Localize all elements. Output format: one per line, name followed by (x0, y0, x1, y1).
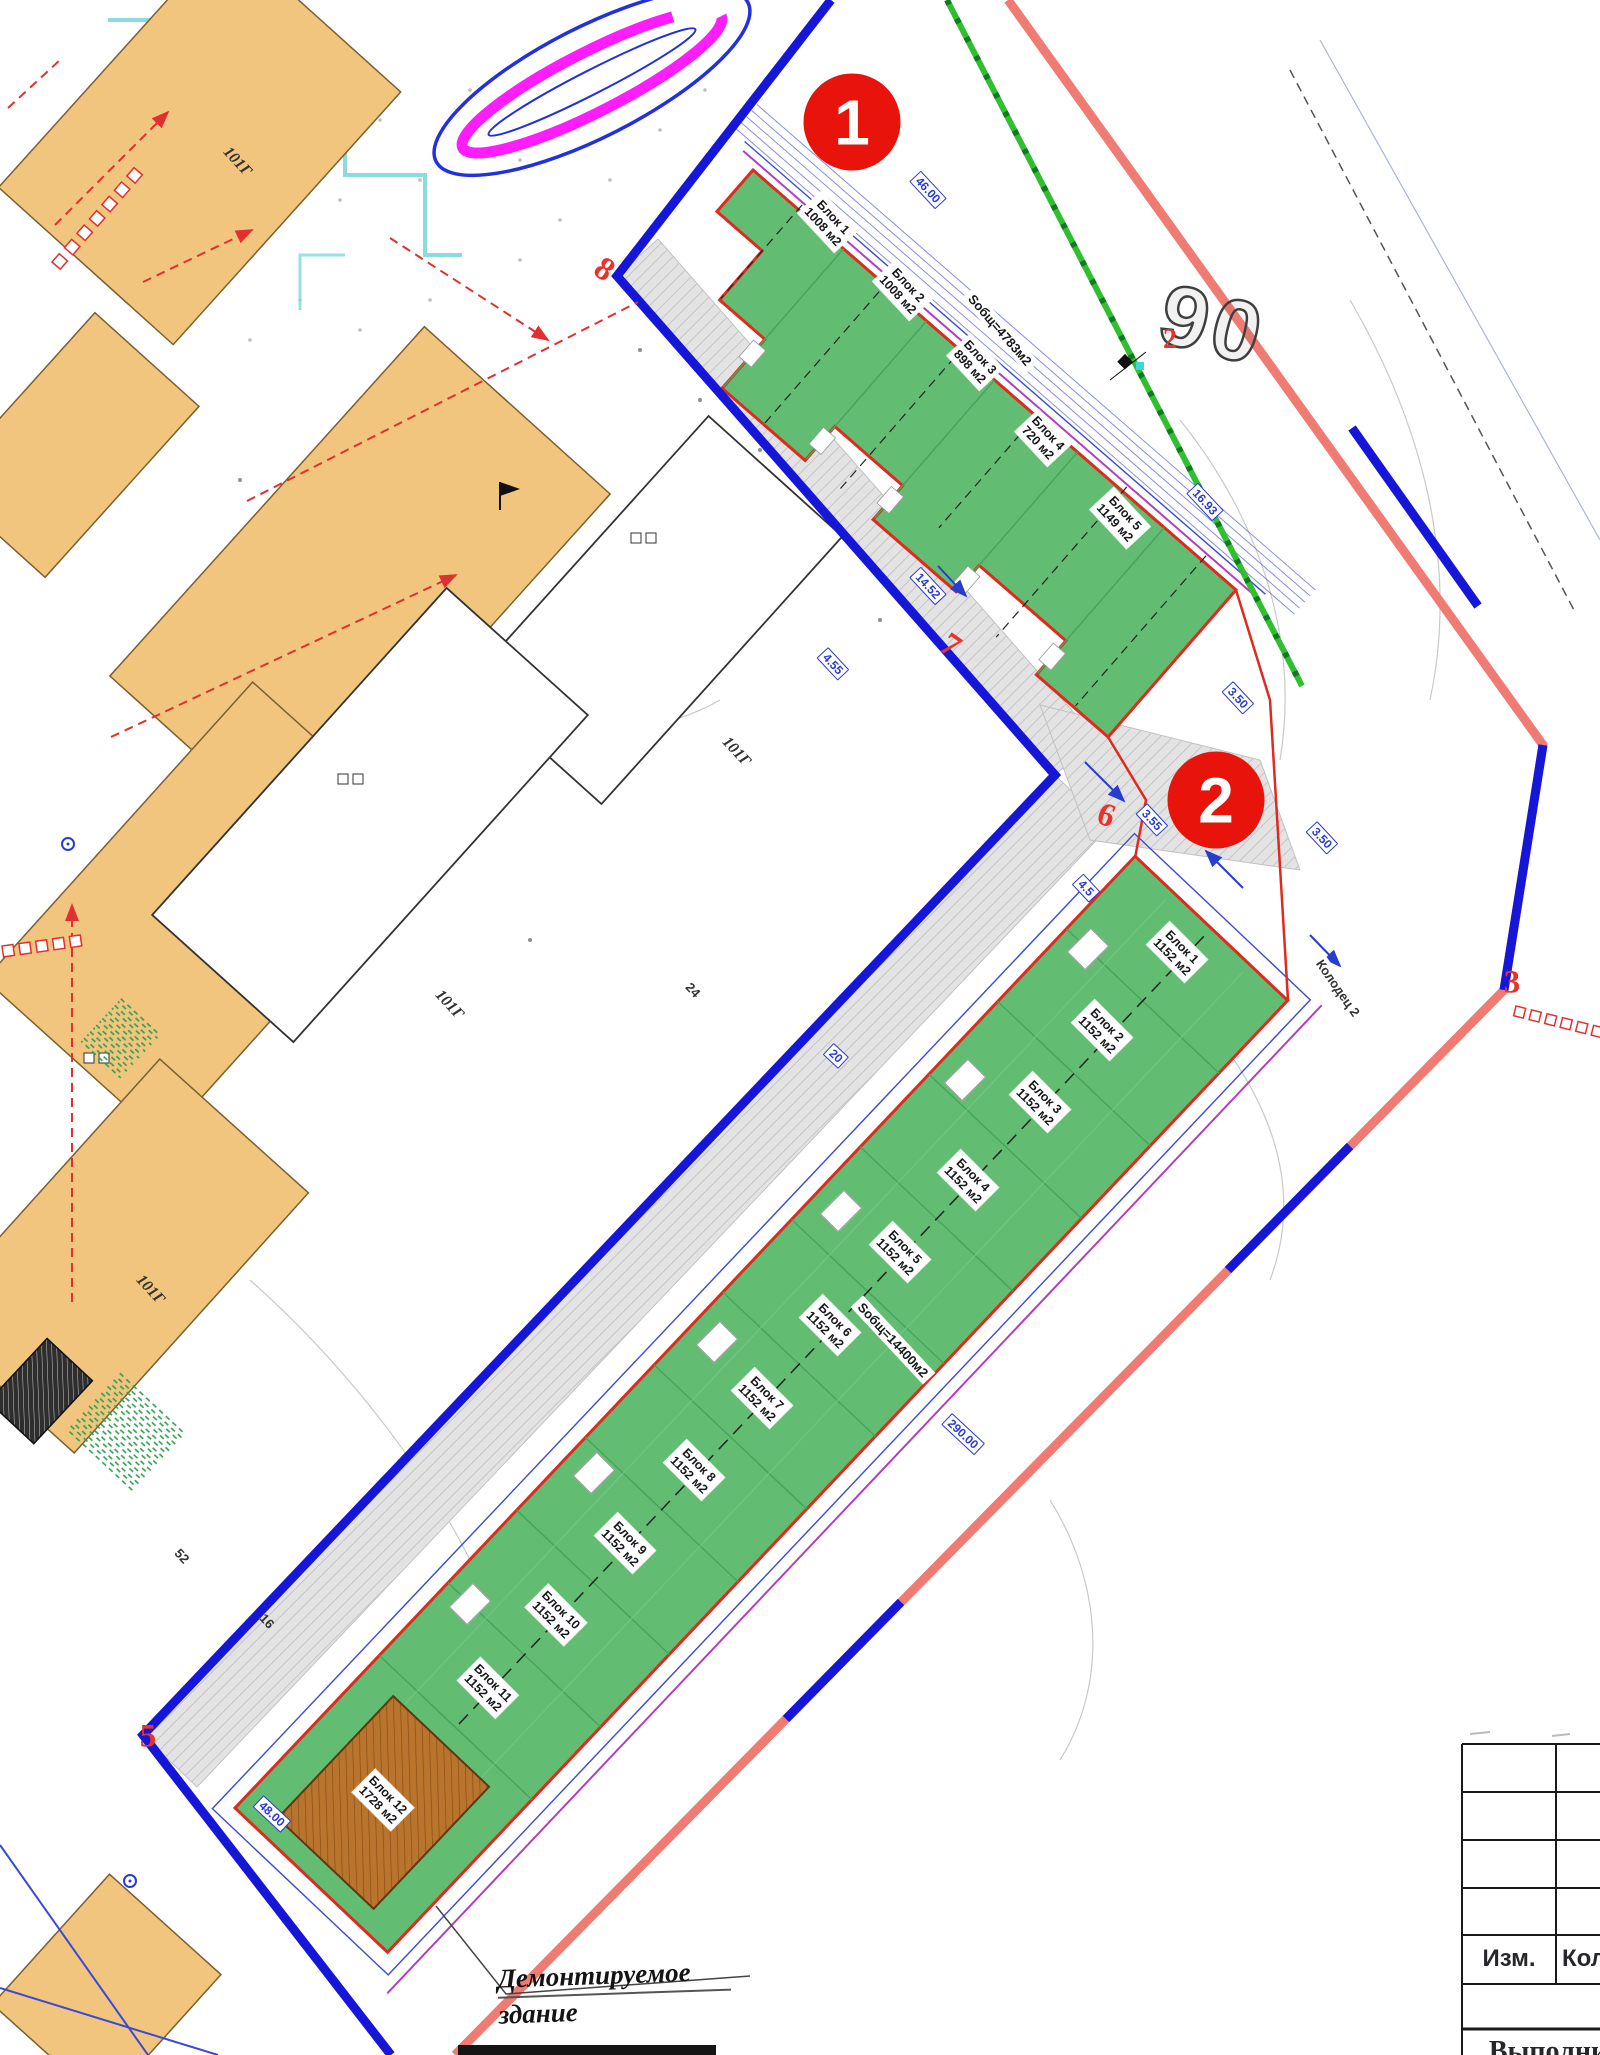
plan-graphics (0, 0, 1600, 2055)
vertex-number: 2 (1163, 326, 1177, 354)
step-marker-2[interactable]: 2 (1168, 752, 1265, 849)
bottom-black-bar (458, 2045, 716, 2055)
loop-road (411, 0, 773, 210)
site-plan-drawing: 1 2 90 Блок 11008 м2 Блок 21008 м2 Блок … (0, 0, 1600, 2055)
cyan-step-line-2 (300, 255, 345, 310)
demolition-note: Демонтируемое здание (497, 1953, 769, 2032)
faint-line (1320, 40, 1600, 540)
titleblock-izm: Изм. (1482, 1947, 1535, 1971)
dashed-line (1290, 70, 1575, 612)
titleblock-bottom-text: Выполни (1489, 2038, 1600, 2055)
title-block-grid (1462, 1732, 1600, 2055)
vertex-number: 3 (1504, 967, 1521, 1000)
step-marker-1[interactable]: 1 (804, 74, 901, 171)
titleblock-kol: Кол (1562, 1947, 1600, 1971)
vertex-number: 5 (140, 1721, 157, 1754)
